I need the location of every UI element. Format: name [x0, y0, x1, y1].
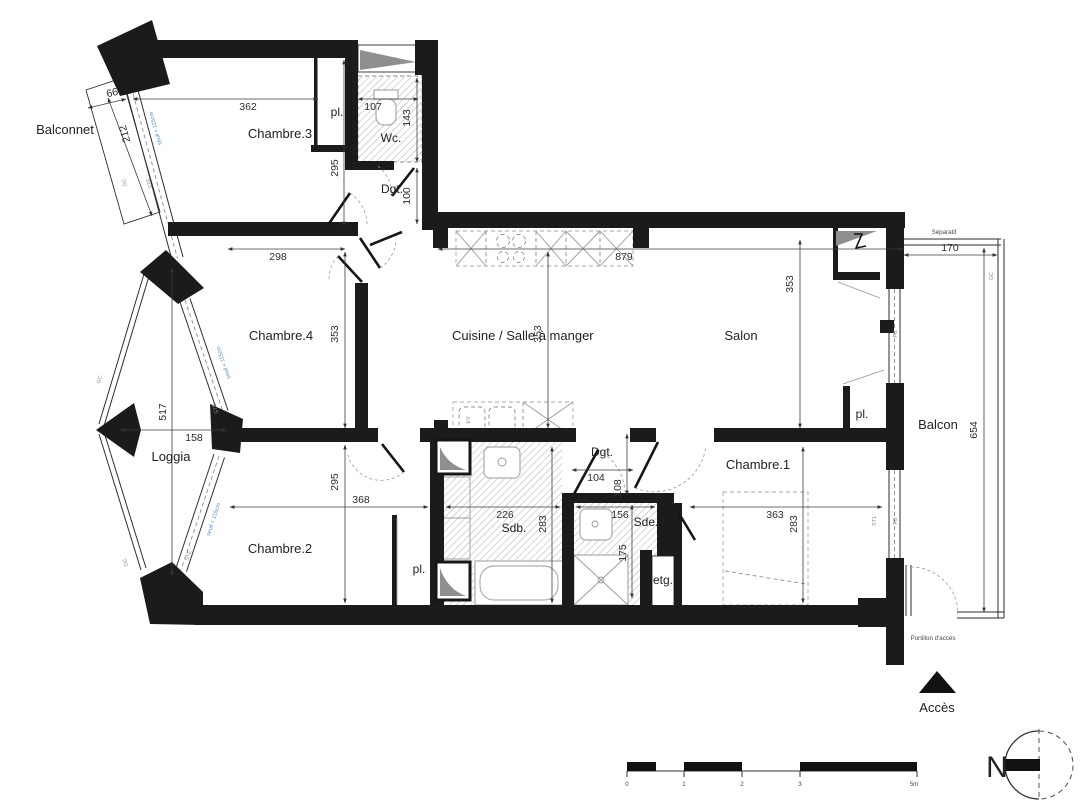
dim-107: 107 — [364, 101, 382, 113]
room-label-pl3: pl. — [413, 562, 426, 576]
scale-tick-3: 3 — [798, 781, 802, 788]
scale-tick-0: 0 — [625, 781, 629, 788]
room-label-etg: etg. — [653, 573, 673, 587]
door-cuisine — [370, 232, 402, 245]
dim-298: 298 — [269, 251, 287, 263]
dim-363: 363 — [766, 509, 784, 521]
dim-517: 517 — [157, 403, 169, 421]
room-label-cuisine: Cuisine / Salle à manger — [452, 328, 594, 343]
dim-156: 156 — [611, 509, 629, 521]
dim-104: 104 — [587, 472, 605, 484]
dim-175: 175 — [617, 544, 629, 562]
scale-tick-2: 2 — [740, 781, 744, 788]
dim-226: 226 — [496, 509, 514, 521]
dim-143: 143 — [401, 109, 413, 127]
dim-170: 170 — [941, 242, 959, 254]
dim-368: 368 — [352, 494, 370, 506]
note-separatif: Séparatif — [932, 229, 957, 236]
room-label-balcon: Balcon — [918, 417, 958, 432]
dim-353c: 353 — [784, 275, 796, 293]
note-st1: ST1 — [872, 516, 878, 526]
dim-295b: 295 — [329, 473, 341, 491]
door-chambre4 — [338, 256, 362, 282]
floorplan-page: EV — [0, 0, 1081, 800]
window-chambre2 — [176, 454, 214, 568]
dim-295a: 295 — [329, 159, 341, 177]
toilet-tank — [374, 90, 398, 99]
door-chambre1 — [635, 442, 658, 488]
dim-283b: 283 — [788, 515, 800, 533]
room-label-balconnet: Balconnet — [36, 122, 94, 137]
sdb-washbasin — [484, 447, 520, 478]
acces-triangle-icon — [919, 671, 956, 693]
dim-108: 108 — [612, 479, 624, 497]
room-label-sde: Sde. — [634, 515, 659, 529]
scale-tick-5m: 5m — [910, 781, 919, 788]
note-portillon: Portillon d'accès — [911, 635, 956, 642]
dim-158: 158 — [185, 432, 203, 444]
access-marker: Accès — [919, 671, 956, 715]
kitchen-counter-top — [456, 231, 633, 266]
room-label-chambre4: Chambre.4 — [249, 328, 313, 343]
north-arrow-icon: N — [986, 729, 1073, 800]
dim-283a: 283 — [537, 515, 549, 533]
window-chambre4 — [180, 302, 218, 414]
room-label-loggia: Loggia — [151, 449, 191, 464]
note-gc-3: GC — [122, 557, 130, 567]
acces-label: Accès — [919, 700, 955, 715]
room-label-chambre2: Chambre.2 — [248, 541, 312, 556]
scale-tick-1: 1 — [682, 781, 686, 788]
room-label-dgt2: Dgt. — [591, 445, 613, 459]
dim-353a: 353 — [329, 325, 341, 343]
room-label-pl1: pl. — [331, 105, 344, 119]
north-label: N — [986, 751, 1008, 784]
note-gc-4: GC — [989, 272, 995, 280]
room-label-chambre1: Chambre.1 — [726, 457, 790, 472]
sde-washbasin — [580, 509, 612, 540]
sink-label: EV — [466, 416, 472, 424]
door-chambre2 — [382, 444, 404, 472]
room-label-salon: Salon — [724, 328, 757, 343]
note-seuil-2: seuil < 115cm — [216, 345, 233, 380]
room-label-sdb: Sdb. — [502, 521, 527, 535]
note-pb-2: PB — [893, 517, 899, 525]
dim-654: 654 — [968, 421, 980, 439]
note-gc-2: GC — [96, 375, 104, 385]
dim-362: 362 — [239, 101, 257, 113]
loggia-guardrail — [99, 274, 144, 424]
scale-bar: 0 1 2 3 5m — [625, 762, 918, 788]
floorplan-drawing: EV — [0, 0, 1081, 800]
room-label-wc: Wc. — [381, 131, 402, 145]
room-label-pl2: pl. — [856, 407, 869, 421]
room-label-chambre3: Chambre.3 — [248, 126, 312, 141]
note-seuil-1: seuil < 115cm — [148, 111, 163, 146]
room-label-dgt1: Dgt. — [381, 182, 403, 196]
dim-879: 879 — [615, 251, 633, 263]
door-chambre3 — [328, 193, 350, 225]
note-pb-1: PB — [893, 330, 899, 338]
